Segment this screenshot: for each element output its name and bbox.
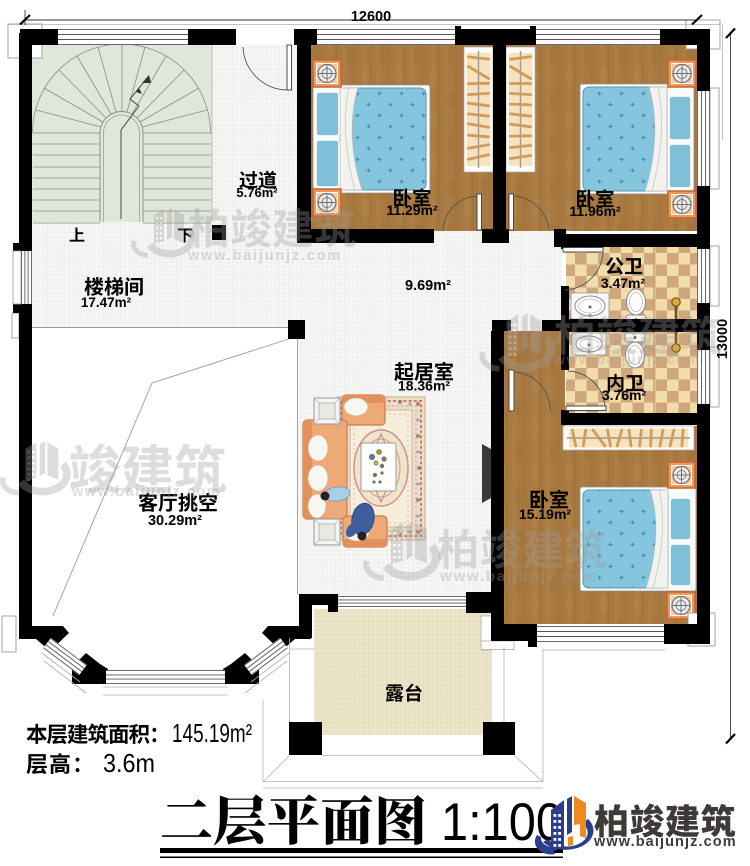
svg-text:30.29m²: 30.29m² bbox=[148, 513, 202, 529]
svg-text:17.47m²: 17.47m² bbox=[81, 295, 132, 310]
svg-text:www.baijunjz.com: www.baijunjz.com bbox=[71, 484, 221, 500]
svg-text:3.47m²: 3.47m² bbox=[601, 275, 646, 291]
svg-text:3.76m²: 3.76m² bbox=[602, 387, 647, 403]
svg-text:www.baijunjz.com: www.baijunjz.com bbox=[187, 248, 342, 264]
svg-text:11.96m²: 11.96m² bbox=[569, 203, 621, 219]
svg-text:12600: 12600 bbox=[351, 9, 391, 25]
svg-text:11.29m²: 11.29m² bbox=[386, 202, 438, 218]
svg-text:145.19m²: 145.19m² bbox=[172, 718, 252, 748]
svg-text:3.6m: 3.6m bbox=[103, 748, 155, 778]
svg-text:18.36m²: 18.36m² bbox=[398, 378, 450, 394]
svg-text:15.19m²: 15.19m² bbox=[519, 506, 571, 522]
svg-text:www.baijunjz.com: www.baijunjz.com bbox=[593, 834, 737, 850]
svg-text:9.69m²: 9.69m² bbox=[405, 278, 451, 294]
svg-text:www.baijunjz.com: www.baijunjz.com bbox=[553, 351, 700, 367]
svg-text:5.76m²: 5.76m² bbox=[236, 185, 278, 200]
svg-text:www.baijunjz.com: www.baijunjz.com bbox=[439, 568, 598, 585]
